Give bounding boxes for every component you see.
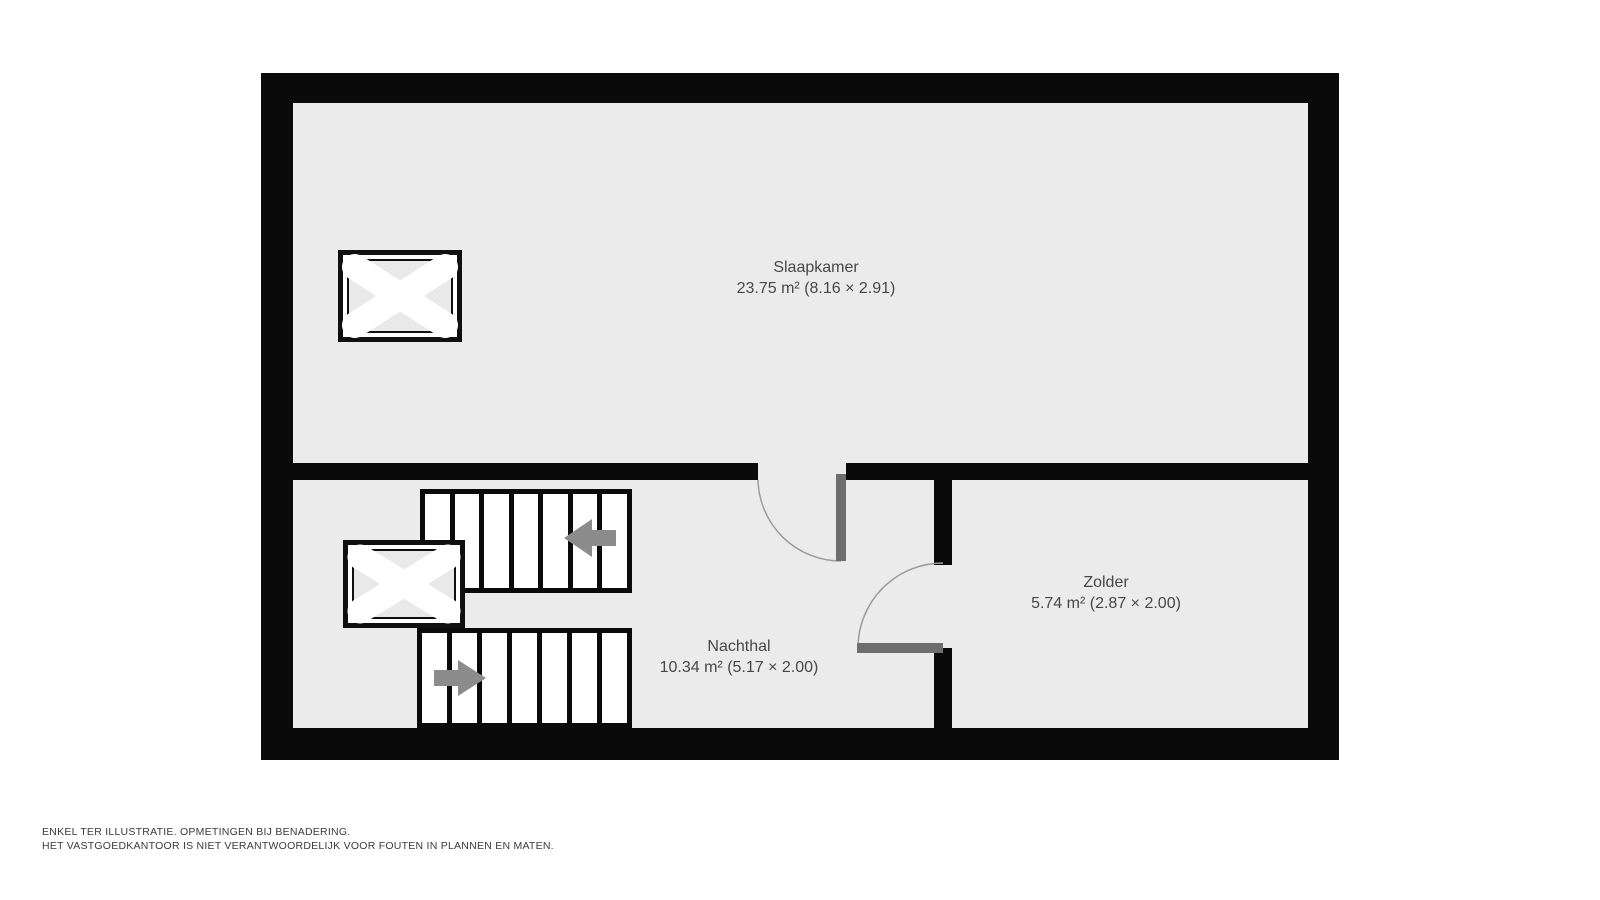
room-name: Slaapkamer [616, 257, 1016, 278]
arrow-right-icon [434, 658, 488, 698]
stair-tread [512, 633, 537, 723]
disclaimer: ENKEL TER ILLUSTRATIE. OPMETINGEN BIJ BE… [42, 826, 554, 853]
room-label-nachthal: Nachthal 10.34 m² (5.17 × 2.00) [539, 636, 939, 678]
roof-window-x-icon [343, 540, 465, 628]
zolder-wall-upper-segment [934, 480, 952, 565]
room-dimensions: 5.74 m² (2.87 × 2.00) [906, 593, 1306, 614]
disclaimer-line-2: HET VASTGOEDKANTOOR IS NIET VERANTWOORDE… [42, 840, 554, 854]
room-name: Zolder [906, 572, 1306, 593]
stair-tread [514, 494, 539, 588]
dividing-wall-right [846, 463, 1308, 480]
room-label-zolder: Zolder 5.74 m² (2.87 × 2.00) [906, 572, 1306, 614]
disclaimer-line-1: ENKEL TER ILLUSTRATIE. OPMETINGEN BIJ BE… [42, 826, 554, 840]
room-label-slaapkamer: Slaapkamer 23.75 m² (8.16 × 2.91) [616, 257, 1016, 299]
stair-tread [484, 494, 509, 588]
dividing-wall-left [293, 463, 758, 480]
slaapkamer-door-leaf [836, 474, 846, 561]
room-name: Nachthal [539, 636, 939, 657]
roof-window-x-icon [338, 250, 462, 342]
arrow-left-icon [562, 516, 616, 560]
room-dimensions: 10.34 m² (5.17 × 2.00) [539, 657, 939, 678]
room-dimensions: 23.75 m² (8.16 × 2.91) [616, 278, 1016, 299]
floor-plan-canvas: Slaapkamer 23.75 m² (8.16 × 2.91) Zolder… [0, 0, 1600, 900]
